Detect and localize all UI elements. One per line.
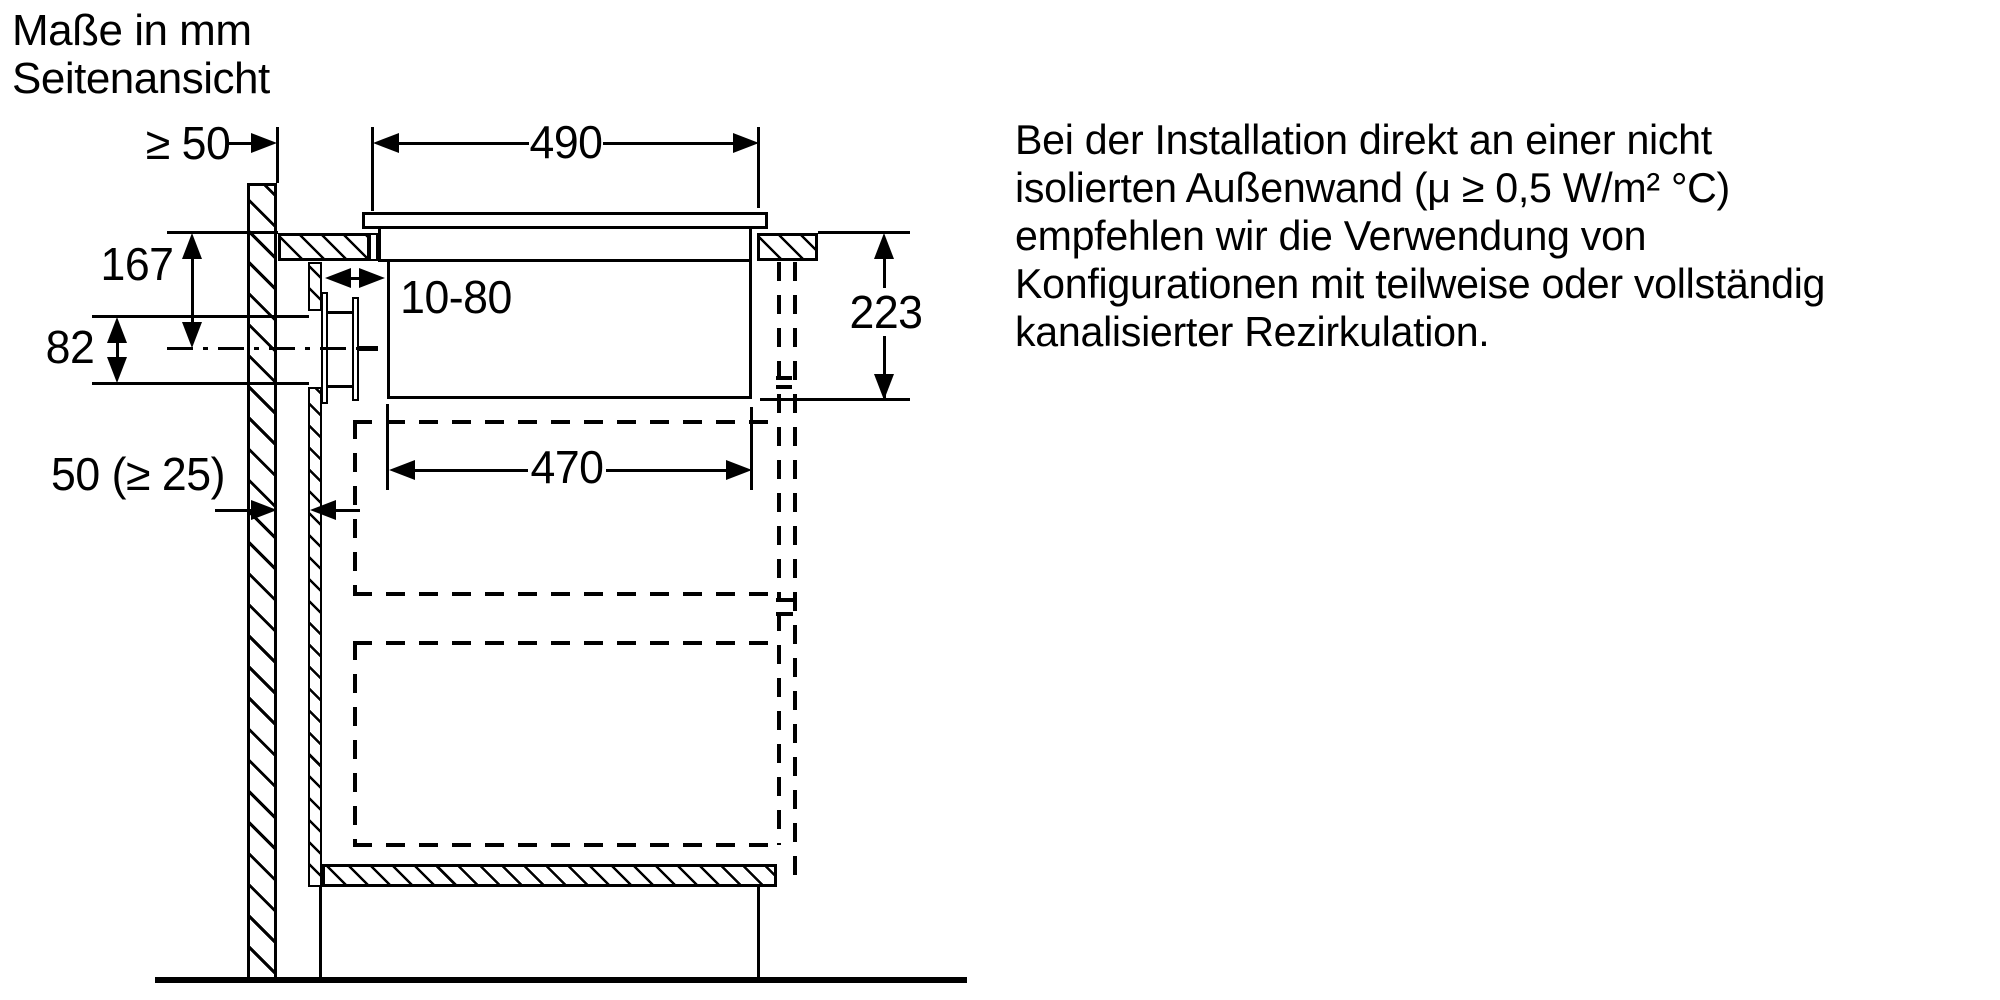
dim-223-arrow-down <box>874 374 894 400</box>
dim-rear-gap-shaft-right <box>334 509 360 512</box>
plinth-left-edge <box>319 887 322 979</box>
dashed-box2-top <box>353 641 779 645</box>
ref-line-223-top <box>818 231 910 234</box>
dim-label-duct-axis: 167 <box>101 241 174 287</box>
worktop-right <box>757 233 818 261</box>
dim-1080-arrow-right <box>359 268 385 288</box>
dashed-box1-left <box>353 420 357 596</box>
duct-joint-mark-2 <box>776 385 792 389</box>
note-line-3: empfehlen wir die Verwendung von <box>1015 212 1825 260</box>
dim-223-shaft-upper <box>883 258 886 288</box>
floor-line <box>155 977 967 983</box>
dashed-box2-bottom <box>353 843 779 847</box>
cabinet-rear-panel-lower <box>308 387 322 887</box>
dim-470-shaft-right <box>606 469 728 472</box>
dim-label-duct-extension: 10-80 <box>400 274 512 320</box>
dim-label-installation-depth: 223 <box>850 289 923 335</box>
dim-490-shaft-right <box>603 142 733 145</box>
dim-label-wall-side-clearance: ≥ 50 <box>146 120 231 166</box>
duct-bottom-wall <box>328 385 352 388</box>
dim-rear-gap-arrow-left <box>310 500 336 520</box>
duct-joint-mark-1 <box>776 376 792 380</box>
dim-label-duct-height: 82 <box>46 324 95 370</box>
ext-line-wall-face <box>276 127 279 183</box>
note-line-5: kanalisierter Rezirkulation. <box>1015 308 1825 356</box>
duct-centre-line <box>167 347 378 350</box>
cabinet-rear-panel-upper <box>308 262 322 311</box>
dim-470-arrow-right <box>726 460 752 480</box>
dashed-box2-left <box>353 641 357 847</box>
dim-rear-gap-shaft-left <box>215 509 253 512</box>
dim-82-arrow-down <box>107 357 127 383</box>
dim-470-arrow-left <box>389 460 415 480</box>
cabinet-bottom-shelf <box>322 864 777 887</box>
view-label: Seitenansicht <box>12 54 270 104</box>
dim-490-arrow-left <box>373 133 399 153</box>
installation-diagram: Maße in mm Seitenansicht Bei der Install… <box>0 0 2000 1000</box>
duct-centre-line-bold-segment <box>357 346 378 351</box>
dim-1080-shaft <box>340 277 360 280</box>
dim-490-shaft-left <box>399 142 529 145</box>
dim-label-rear-gap: 50 (≥ 25) <box>51 451 225 497</box>
dashed-box1-bottom <box>353 592 777 596</box>
note-line-2: isolierten Außenwand (μ ≥ 0,5 W/m² °C) <box>1015 164 1825 212</box>
duct-segment-end-cap <box>776 598 793 602</box>
dim-min50-shaft <box>228 142 253 145</box>
dim-label-cutout-width: 490 <box>530 119 603 165</box>
installation-note: Bei der Installation direkt an einer nic… <box>1015 116 1842 356</box>
dim-223-arrow-up <box>874 233 894 259</box>
dim-label-appliance-width: 470 <box>531 444 604 490</box>
dim-167-arrow-down <box>182 322 202 348</box>
dashed-box1-top <box>353 420 777 424</box>
dim-rear-gap-arrow-right <box>251 500 277 520</box>
worktop-cutout-edge <box>369 233 378 261</box>
worktop-left <box>278 233 370 261</box>
note-line-4: Konfigurationen mit teilweise oder volls… <box>1015 260 1825 308</box>
dim-470-shaft-left <box>414 469 528 472</box>
plinth-right-edge <box>757 887 760 979</box>
recirculation-duct-outer-dashed <box>793 262 797 880</box>
recirculation-duct-inner-upper-dashed <box>777 262 781 600</box>
recirculation-duct-inner-lower-dashed <box>777 612 781 845</box>
hob-body <box>378 226 752 262</box>
dim-min50-arrow-right <box>251 133 277 153</box>
duct-top-wall <box>328 311 352 314</box>
wall-section <box>247 183 277 980</box>
dim-490-arrow-right <box>733 133 759 153</box>
units-label: Maße in mm <box>12 6 251 56</box>
note-line-1: Bei der Installation direkt an einer nic… <box>1015 116 1825 164</box>
